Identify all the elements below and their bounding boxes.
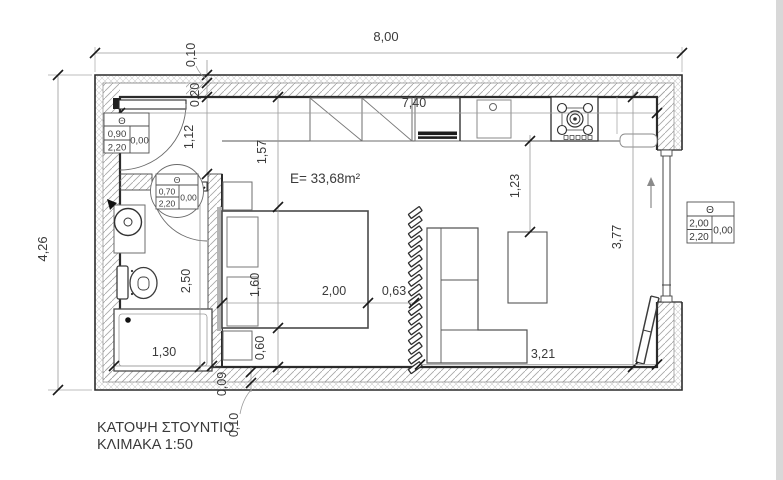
balcony-sliding-door (647, 150, 672, 302)
counter-end-unit (620, 134, 657, 147)
dim-total-depth: 4,26 (35, 236, 50, 261)
door-symbol: Θ (118, 116, 125, 127)
entrance-door-leaf (119, 100, 186, 109)
door-symbol: Θ (706, 205, 714, 216)
dim-total-width: 8,00 (373, 29, 398, 44)
door-width: 0,90 (108, 129, 127, 140)
dim-ins-top: 0,10 (184, 43, 198, 67)
dim-interior-depth: 3,77 (610, 225, 624, 249)
floor-plan-drawing: 8,00 4,26 0,10 0,20 1,12 1,57 1,60 0,60 … (0, 0, 783, 480)
dim-interior-width: 7,40 (402, 96, 426, 110)
pillow (227, 217, 258, 267)
dim-bed-to-wall: 0,60 (253, 336, 267, 360)
toilet-tank (117, 266, 128, 299)
title-block: ΚΑΤΟΨΗ ΣΤΟΥΝΤΙΟ ΚΛΙΜΑΚΑ 1:50 (97, 420, 234, 453)
dim-bath-depth: 2,50 (179, 269, 193, 293)
dim-core-top: 0,20 (188, 83, 202, 107)
stove-icon (551, 97, 598, 141)
drawing-scale: ΚΛΙΜΑΚΑ 1:50 (97, 437, 193, 453)
dim-closet-zone: 1,57 (255, 140, 269, 164)
door-width: 0,70 (159, 187, 176, 197)
dim-gap-to-partition: 0,63 (382, 284, 406, 298)
door-schedule-bathroom: Θ 0,70 2,20 0,00 (151, 165, 204, 218)
nightstand (223, 182, 252, 210)
door-height: 2,20 (689, 232, 709, 243)
dim-entry-depth: 1,12 (182, 125, 196, 149)
door-height: 2,20 (108, 143, 127, 154)
bed-area (217, 182, 368, 360)
partition-screen (408, 206, 422, 373)
door-symbol: Θ (174, 175, 181, 185)
dim-bed-length: 2,00 (322, 284, 346, 298)
floor-plan-sheet: 8,00 4,26 0,10 0,20 1,12 1,57 1,60 0,60 … (0, 0, 783, 480)
door-sill: 0,00 (180, 193, 197, 203)
dim-shower-width: 1,30 (152, 345, 176, 359)
dim-core-bottom: 0,09 (215, 372, 229, 396)
kitchen (222, 97, 657, 147)
door-sill: 0,00 (130, 136, 149, 147)
drawing-title: ΚΑΤΟΨΗ ΣΤΟΥΝΤΙΟ (97, 420, 234, 436)
door-schedule-balcony: Θ 2,00 2,20 0,00 (687, 202, 734, 243)
nightstand (223, 331, 252, 360)
door-height: 2,20 (159, 199, 176, 209)
dim-living-width: 3,21 (531, 347, 555, 361)
area-label: E= 33,68m² (290, 171, 361, 186)
arrow-head-icon (647, 177, 655, 186)
living-area (427, 228, 547, 363)
sheet-edge (776, 0, 783, 480)
dim-counter-gap: 1,23 (508, 174, 522, 198)
door-schedule-entrance: Θ 0,90 2,20 0,00 (104, 113, 149, 154)
dim-bed-width: 1,60 (248, 273, 262, 297)
leaning-panel (636, 296, 659, 364)
door-width: 2,00 (689, 219, 709, 230)
drain-icon (125, 317, 131, 323)
coffee-table (508, 232, 547, 303)
door-sill: 0,00 (713, 226, 733, 237)
